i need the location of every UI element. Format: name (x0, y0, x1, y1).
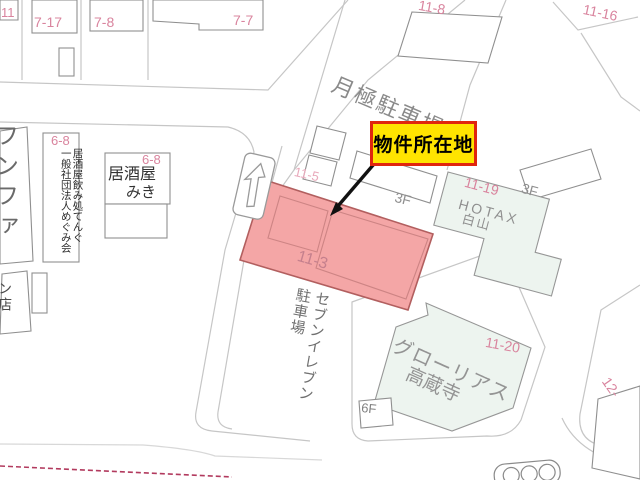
map-canvas: 11 7-17 7-8 7-7 11-8 11-16 月極駐車場 物件所在地 1… (0, 0, 640, 480)
izakaya-name-line1: 居酒屋 (108, 166, 156, 184)
planting-symbol (493, 459, 561, 480)
lot-label-7-17: 7-17 (34, 14, 62, 30)
building-outline (105, 204, 167, 238)
tenant-vertical-labels: 居酒屋飲み処てんぐ 一般社団法人めぐみ会 (59, 148, 83, 253)
building-outline (592, 386, 640, 479)
lot-label-7-8: 7-8 (94, 14, 114, 30)
building-outline (59, 48, 74, 76)
lot-label-6-8-a: 6-8 (51, 134, 70, 149)
parcel-line (218, 260, 244, 429)
map-drawing (0, 0, 640, 480)
property-location-callout: 物件所在地 (370, 121, 477, 166)
lot-label-11: 11 (1, 6, 15, 21)
parcel-line (581, 33, 640, 111)
road-edge (0, 444, 322, 460)
building-outline (32, 273, 47, 313)
dashed-boundary-line (0, 466, 232, 477)
building-outline (310, 126, 346, 160)
lot-label-7-7: 7-7 (233, 12, 253, 28)
shop-label-partial: ン店 (0, 281, 13, 313)
izakaya-name-line2: みき (126, 184, 156, 201)
building-outline (398, 12, 502, 63)
floor-label-6f: 6F (360, 401, 377, 417)
funfa-building-label: フンファ (0, 123, 18, 243)
